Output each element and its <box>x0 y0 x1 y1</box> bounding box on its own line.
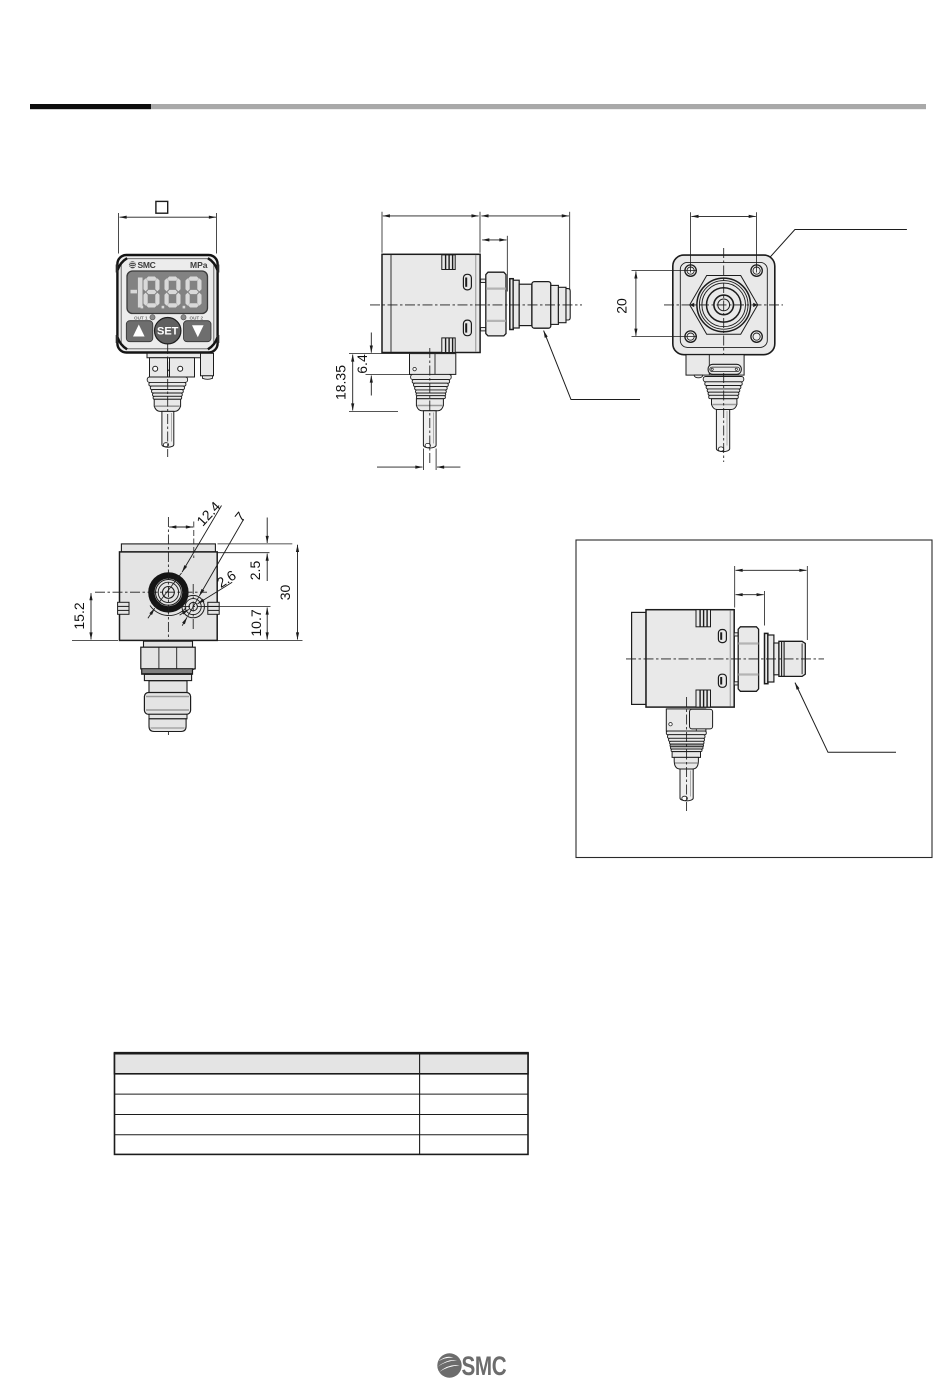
svg-text:SMC: SMC <box>138 260 156 270</box>
svg-text:2.5: 2.5 <box>247 561 263 581</box>
svg-text:15.2: 15.2 <box>71 602 87 629</box>
svg-text:SMC: SMC <box>462 1351 507 1380</box>
svg-text:SET: SET <box>157 326 179 338</box>
svg-text:6.4: 6.4 <box>354 354 370 374</box>
svg-text:18.35: 18.35 <box>333 365 349 400</box>
svg-text:MPa: MPa <box>190 260 208 270</box>
svg-text:30: 30 <box>277 585 293 601</box>
svg-text:10.7: 10.7 <box>248 609 264 636</box>
svg-text:OUT 1: OUT 1 <box>134 315 148 320</box>
svg-text:OUT 2: OUT 2 <box>190 315 204 320</box>
svg-text:7: 7 <box>231 509 248 525</box>
svg-text:12.4: 12.4 <box>193 498 223 529</box>
svg-text:20: 20 <box>614 298 630 314</box>
